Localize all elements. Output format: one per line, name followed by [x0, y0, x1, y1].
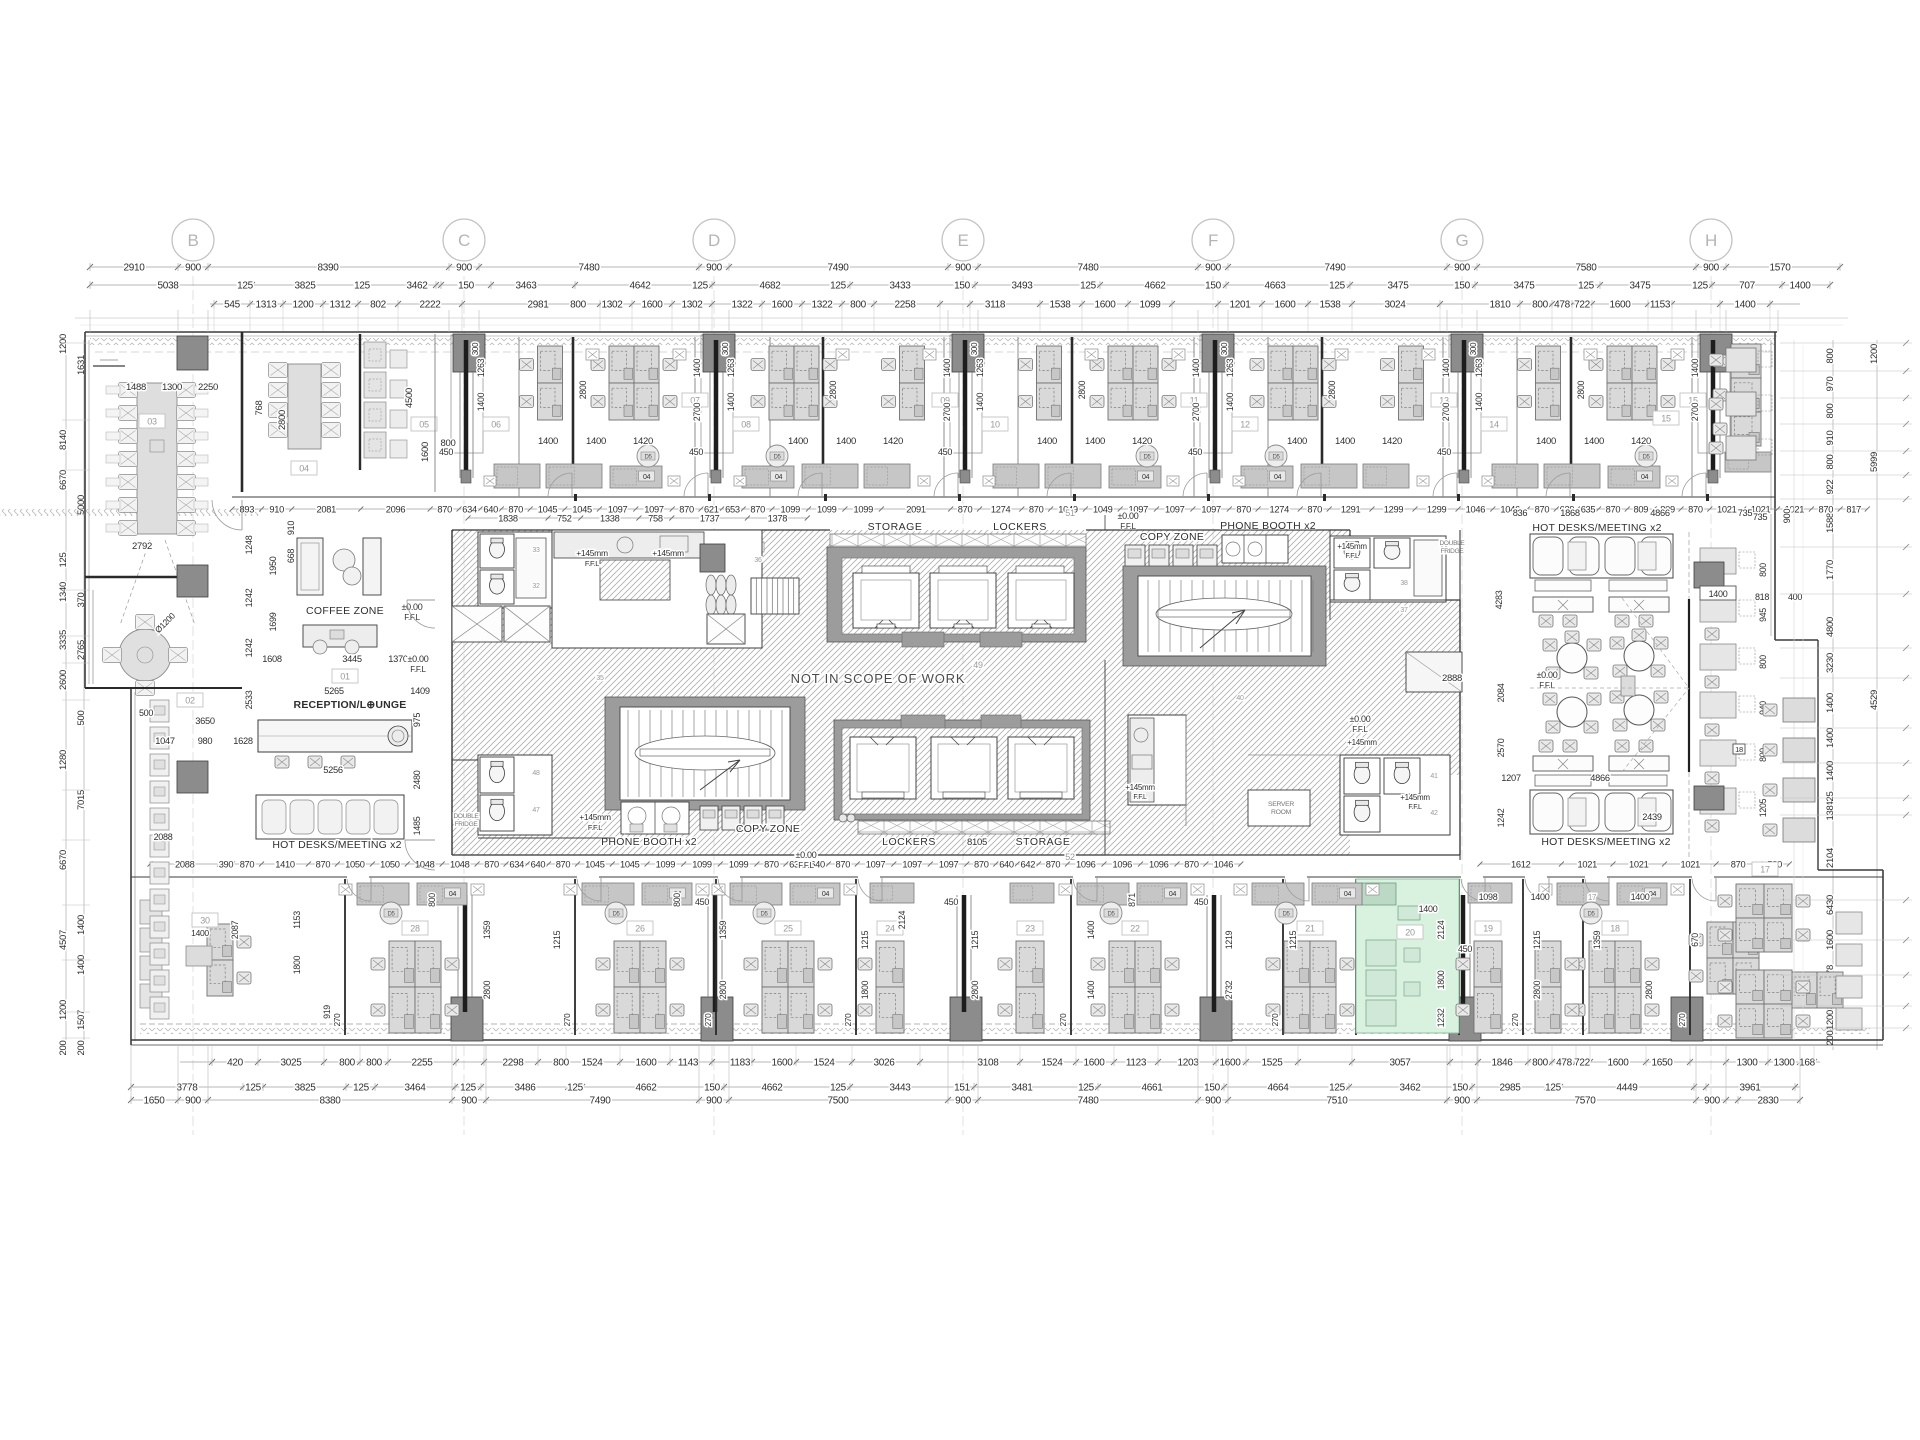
svg-text:4662: 4662 [1144, 281, 1166, 292]
svg-text:640: 640 [531, 860, 546, 870]
svg-text:425: 425 [1825, 792, 1836, 807]
svg-text:3057: 3057 [1389, 1058, 1411, 1069]
svg-text:2088: 2088 [154, 832, 173, 842]
svg-text:DOUBLE: DOUBLE [1440, 540, 1466, 547]
svg-text:D5: D5 [644, 455, 652, 461]
svg-text:±0.00: ±0.00 [402, 602, 423, 612]
svg-text:3335: 3335 [58, 630, 69, 650]
svg-text:2732: 2732 [1224, 980, 1234, 999]
svg-text:150: 150 [704, 1083, 721, 1094]
svg-text:270: 270 [1059, 1013, 1068, 1027]
svg-text:2091: 2091 [906, 505, 926, 515]
svg-text:1097: 1097 [866, 860, 886, 870]
svg-text:1600: 1600 [641, 300, 663, 311]
svg-text:1300: 1300 [1773, 1058, 1795, 1069]
svg-text:3475: 3475 [1513, 281, 1535, 292]
svg-text:2124: 2124 [897, 910, 907, 929]
svg-text:150: 150 [458, 281, 475, 292]
svg-text:1370: 1370 [388, 654, 408, 664]
svg-text:6430: 6430 [1825, 895, 1836, 915]
svg-text:1021: 1021 [1629, 860, 1649, 870]
svg-text:900: 900 [461, 1096, 478, 1107]
svg-text:D5: D5 [760, 912, 768, 918]
svg-text:450: 450 [1437, 447, 1451, 457]
svg-text:4664: 4664 [1267, 1083, 1289, 1094]
svg-text:D5: D5 [1282, 912, 1290, 918]
svg-text:3118: 3118 [985, 300, 1006, 311]
svg-text:2981: 2981 [527, 300, 549, 311]
svg-text:+145mm: +145mm [1400, 793, 1430, 802]
svg-text:945: 945 [1758, 608, 1768, 622]
svg-text:7480: 7480 [1077, 263, 1099, 274]
svg-text:1400: 1400 [76, 915, 87, 935]
svg-text:150: 150 [1452, 1083, 1469, 1094]
svg-text:1274: 1274 [991, 505, 1011, 515]
svg-text:800: 800 [1758, 655, 1768, 669]
svg-text:30: 30 [200, 916, 210, 926]
svg-text:D5: D5 [387, 912, 395, 918]
svg-text:800: 800 [366, 1058, 383, 1069]
svg-text:1359: 1359 [1592, 930, 1602, 949]
svg-text:870: 870 [1029, 505, 1044, 515]
svg-text:4800: 4800 [1825, 617, 1836, 637]
svg-text:3026: 3026 [873, 1058, 895, 1069]
svg-text:1200: 1200 [292, 300, 314, 311]
svg-text:1021: 1021 [1577, 860, 1597, 870]
svg-text:20: 20 [1405, 928, 1415, 938]
svg-text:06: 06 [491, 420, 501, 430]
svg-text:1302: 1302 [681, 300, 703, 311]
svg-text:1215: 1215 [552, 930, 562, 949]
svg-text:7570: 7570 [1574, 1096, 1596, 1107]
svg-text:138: 138 [1825, 806, 1836, 821]
svg-text:635: 635 [1581, 505, 1596, 515]
svg-text:900: 900 [706, 263, 723, 274]
svg-text:2800: 2800 [482, 980, 492, 999]
svg-text:FRIDGE: FRIDGE [455, 821, 479, 828]
svg-text:450: 450 [1188, 447, 1202, 457]
svg-text:HOT DESKS/MEETING x2: HOT DESKS/MEETING x2 [272, 839, 401, 851]
svg-text:200: 200 [58, 1041, 69, 1056]
svg-text:1096: 1096 [1076, 860, 1096, 870]
svg-text:1420: 1420 [1631, 436, 1651, 447]
svg-text:24: 24 [885, 924, 895, 934]
svg-text:03: 03 [147, 417, 157, 427]
svg-text:919: 919 [322, 1005, 332, 1019]
svg-text:1400: 1400 [76, 955, 87, 975]
svg-text:800: 800 [1825, 404, 1836, 419]
svg-text:642: 642 [1020, 860, 1035, 870]
svg-text:125: 125 [1329, 281, 1346, 292]
svg-text:2888: 2888 [1442, 673, 1462, 684]
svg-text:D: D [708, 231, 720, 250]
svg-text:975: 975 [412, 713, 422, 727]
svg-text:1048: 1048 [450, 860, 470, 870]
svg-text:1248: 1248 [244, 535, 254, 554]
svg-text:870: 870 [1184, 860, 1199, 870]
svg-text:1046: 1046 [1214, 860, 1234, 870]
svg-text:D5: D5 [1143, 455, 1151, 461]
svg-text:125: 125 [1078, 1083, 1095, 1094]
svg-text:150: 150 [1454, 281, 1471, 292]
svg-text:270: 270 [844, 1013, 853, 1027]
svg-text:270: 270 [1511, 1013, 1520, 1027]
svg-text:1868: 1868 [1560, 508, 1580, 518]
svg-text:22: 22 [1130, 924, 1140, 934]
svg-text:1600: 1600 [1607, 1058, 1629, 1069]
svg-text:1600: 1600 [635, 1058, 657, 1069]
svg-text:1143: 1143 [678, 1058, 699, 1069]
svg-text:870: 870 [240, 860, 255, 870]
svg-text:125: 125 [1578, 281, 1595, 292]
svg-text:1538: 1538 [1319, 300, 1341, 311]
svg-text:150: 150 [1204, 1083, 1221, 1094]
svg-text:125: 125 [237, 281, 254, 292]
svg-text:08: 08 [741, 420, 751, 430]
svg-text:1203: 1203 [1177, 1058, 1199, 1069]
svg-text:870: 870 [1236, 505, 1251, 515]
svg-text:900: 900 [1782, 509, 1792, 524]
svg-text:400: 400 [1788, 592, 1802, 602]
svg-text:48: 48 [532, 770, 540, 777]
svg-text:3475: 3475 [1387, 281, 1409, 292]
svg-text:1232: 1232 [1436, 1008, 1446, 1027]
svg-text:3481: 3481 [1011, 1083, 1033, 1094]
svg-text:150: 150 [1205, 281, 1222, 292]
svg-text:1400: 1400 [1474, 392, 1484, 411]
svg-text:1400: 1400 [1335, 436, 1355, 447]
svg-text:1200: 1200 [1825, 1010, 1836, 1030]
svg-text:125: 125 [460, 1083, 477, 1094]
svg-text:1299: 1299 [1384, 505, 1404, 515]
svg-text:1400: 1400 [1531, 892, 1550, 902]
svg-text:19: 19 [1483, 924, 1493, 934]
svg-text:G: G [1456, 231, 1469, 250]
svg-text:1950: 1950 [268, 556, 278, 575]
svg-text:1322: 1322 [731, 300, 753, 311]
svg-text:8390: 8390 [317, 263, 339, 274]
svg-text:33: 33 [532, 547, 540, 554]
svg-text:D5: D5 [1107, 912, 1115, 918]
svg-text:125: 125 [1545, 1083, 1562, 1094]
svg-text:300: 300 [1220, 342, 1229, 355]
svg-text:1338: 1338 [600, 514, 620, 524]
svg-text:1215: 1215 [1288, 930, 1298, 949]
svg-text:3443: 3443 [889, 1083, 911, 1094]
svg-text:RECEPTION/L⊕UNGE: RECEPTION/L⊕UNGE [294, 699, 407, 711]
svg-text:02: 02 [185, 696, 195, 706]
svg-text:1400: 1400 [1709, 589, 1728, 599]
svg-text:300: 300 [721, 342, 730, 355]
svg-text:LOCKERS: LOCKERS [882, 836, 936, 848]
svg-text:+145mm: +145mm [1347, 738, 1377, 747]
svg-text:870: 870 [764, 860, 779, 870]
svg-text:1153: 1153 [292, 911, 302, 929]
svg-text:1507: 1507 [76, 1010, 87, 1030]
svg-text:17: 17 [1760, 865, 1770, 875]
svg-text:2800: 2800 [1327, 380, 1337, 399]
svg-text:1200: 1200 [1869, 344, 1880, 364]
svg-text:980: 980 [198, 736, 213, 746]
svg-text:04: 04 [449, 891, 457, 898]
svg-text:722: 722 [1574, 300, 1591, 311]
svg-text:1400: 1400 [692, 358, 702, 377]
svg-text:2439: 2439 [1642, 812, 1662, 822]
svg-text:1300: 1300 [1736, 1058, 1758, 1069]
svg-text:1263: 1263 [1225, 358, 1235, 377]
svg-text:500: 500 [139, 708, 153, 718]
svg-text:F: F [1208, 231, 1218, 250]
svg-text:125: 125 [353, 1083, 370, 1094]
svg-text:1400: 1400 [1789, 281, 1811, 292]
svg-text:2800: 2800 [1644, 980, 1654, 999]
svg-text:F.F.L: F.F.L [404, 613, 420, 622]
svg-text:910: 910 [1825, 431, 1836, 446]
svg-text:5265: 5265 [324, 686, 344, 696]
svg-text:2533: 2533 [244, 690, 254, 709]
svg-text:F.F.L: F.F.L [588, 823, 602, 832]
svg-text:D5: D5 [1642, 455, 1650, 461]
svg-text:1485: 1485 [412, 816, 422, 835]
svg-text:1201: 1201 [1229, 300, 1251, 311]
svg-text:1488: 1488 [126, 382, 146, 393]
svg-text:1838: 1838 [498, 514, 518, 524]
svg-text:2570: 2570 [1496, 738, 1506, 757]
svg-text:FRIDGE: FRIDGE [1441, 548, 1465, 555]
svg-text:1650: 1650 [143, 1096, 165, 1107]
svg-text:2800: 2800 [277, 410, 288, 430]
svg-text:23: 23 [1025, 924, 1035, 934]
svg-text:04: 04 [1169, 891, 1177, 898]
svg-text:4500: 4500 [404, 388, 415, 408]
svg-text:900: 900 [955, 263, 972, 274]
svg-text:38: 38 [1400, 580, 1408, 587]
svg-text:H: H [1705, 231, 1717, 250]
svg-text:1263: 1263 [726, 358, 736, 377]
svg-text:910: 910 [269, 505, 284, 515]
svg-text:1291: 1291 [1341, 505, 1361, 515]
svg-text:870: 870 [679, 505, 694, 515]
svg-text:1098: 1098 [1479, 892, 1498, 902]
svg-text:1400: 1400 [586, 436, 606, 447]
svg-text:1215: 1215 [970, 930, 980, 949]
svg-text:1600: 1600 [1219, 1058, 1241, 1069]
svg-text:640: 640 [999, 860, 1014, 870]
svg-text:802: 802 [370, 300, 387, 311]
svg-text:870: 870 [1307, 505, 1322, 515]
svg-text:±0.00: ±0.00 [796, 850, 817, 860]
svg-text:1410: 1410 [275, 860, 295, 870]
svg-text:F.F.L: F.F.L [410, 665, 426, 674]
svg-text:STORAGE: STORAGE [868, 521, 923, 533]
svg-text:37: 37 [1400, 607, 1408, 614]
svg-text:1046: 1046 [1466, 505, 1486, 515]
svg-text:125: 125 [1329, 1083, 1346, 1094]
svg-text:+145mm: +145mm [652, 548, 684, 558]
svg-text:270: 270 [563, 1013, 572, 1027]
svg-text:1021: 1021 [1717, 505, 1737, 515]
svg-text:4663: 4663 [1264, 281, 1286, 292]
svg-text:1400: 1400 [788, 436, 808, 447]
svg-text:25: 25 [783, 924, 793, 934]
svg-text:7490: 7490 [589, 1096, 611, 1107]
svg-text:1810: 1810 [1489, 300, 1511, 311]
svg-text:04: 04 [1344, 891, 1352, 898]
svg-text:+145mm: +145mm [579, 812, 611, 822]
svg-text:04: 04 [1641, 474, 1649, 481]
svg-text:D5: D5 [612, 912, 620, 918]
svg-text:3433: 3433 [889, 281, 911, 292]
svg-text:1600: 1600 [420, 442, 431, 462]
svg-text:3475: 3475 [1629, 281, 1651, 292]
svg-text:1097: 1097 [1165, 505, 1185, 515]
svg-text:800: 800 [441, 438, 456, 449]
svg-text:7480: 7480 [1077, 1096, 1099, 1107]
svg-text:2700: 2700 [1690, 402, 1700, 421]
svg-text:300: 300 [970, 342, 979, 355]
svg-text:1600: 1600 [771, 1058, 793, 1069]
svg-text:1378: 1378 [768, 514, 788, 524]
svg-text:E: E [957, 231, 968, 250]
svg-text:4866: 4866 [1650, 508, 1670, 518]
svg-text:870: 870 [556, 860, 571, 870]
svg-text:1420: 1420 [1382, 436, 1402, 447]
svg-text:04: 04 [1274, 474, 1282, 481]
svg-text:5999: 5999 [1869, 452, 1880, 472]
svg-text:2088: 2088 [175, 860, 195, 870]
svg-text:768: 768 [254, 401, 265, 416]
svg-text:2800: 2800 [578, 380, 588, 399]
svg-text:14: 14 [1489, 420, 1499, 430]
svg-text:±0.00: ±0.00 [1118, 511, 1139, 521]
svg-text:18: 18 [1735, 745, 1743, 754]
svg-text:F.F.L: F.F.L [585, 559, 599, 568]
svg-text:18: 18 [1610, 924, 1620, 934]
svg-text:125: 125 [692, 281, 709, 292]
svg-text:47: 47 [532, 807, 540, 814]
svg-text:04: 04 [822, 891, 830, 898]
svg-text:900: 900 [456, 263, 473, 274]
svg-text:F.F.L: F.F.L [1133, 794, 1147, 801]
svg-text:900: 900 [706, 1096, 723, 1107]
svg-text:1322: 1322 [811, 300, 833, 311]
svg-text:870: 870 [1606, 505, 1621, 515]
svg-text:200: 200 [76, 1041, 87, 1056]
svg-text:1340: 1340 [58, 582, 69, 602]
svg-text:3961: 3961 [1739, 1083, 1761, 1094]
svg-text:D5: D5 [773, 455, 781, 461]
svg-text:800: 800 [339, 1058, 356, 1069]
svg-text:970: 970 [1825, 377, 1836, 392]
svg-text:1263: 1263 [476, 358, 486, 377]
svg-text:1263: 1263 [1474, 358, 1484, 377]
svg-text:1047: 1047 [155, 736, 175, 746]
svg-text:1800: 1800 [292, 955, 302, 974]
svg-text:125: 125 [1080, 281, 1097, 292]
svg-text:8105: 8105 [967, 837, 987, 848]
svg-text:1359: 1359 [718, 920, 728, 939]
svg-text:800: 800 [1758, 563, 1768, 577]
svg-text:735: 735 [1753, 512, 1768, 522]
svg-text:125: 125 [1692, 281, 1709, 292]
svg-text:125: 125 [830, 1083, 847, 1094]
svg-text:3025: 3025 [280, 1058, 302, 1069]
svg-text:1099: 1099 [729, 860, 749, 870]
svg-text:1538: 1538 [1049, 300, 1071, 311]
svg-text:STORAGE: STORAGE [1016, 836, 1071, 848]
svg-text:1420: 1420 [883, 436, 903, 447]
svg-text:2800: 2800 [1077, 380, 1087, 399]
svg-text:1049: 1049 [1093, 505, 1113, 515]
svg-text:1215: 1215 [1532, 930, 1542, 949]
svg-text:270: 270 [704, 1013, 713, 1027]
svg-text:2800: 2800 [1532, 980, 1542, 999]
svg-text:1400: 1400 [1584, 436, 1604, 447]
svg-text:3445: 3445 [342, 654, 362, 664]
svg-text:±0.00: ±0.00 [1350, 714, 1371, 724]
svg-text:1600: 1600 [1094, 300, 1116, 311]
svg-text:634: 634 [509, 860, 524, 870]
svg-text:7015: 7015 [76, 790, 87, 810]
svg-text:2800: 2800 [828, 380, 838, 399]
svg-text:270: 270 [1678, 1013, 1687, 1027]
svg-text:2087: 2087 [230, 920, 240, 939]
svg-text:3825: 3825 [294, 1083, 316, 1094]
svg-text:7500: 7500 [827, 1096, 849, 1107]
svg-text:3462: 3462 [1399, 1083, 1421, 1094]
svg-text:1608: 1608 [262, 654, 282, 664]
svg-text:04: 04 [1142, 474, 1150, 481]
svg-text:2480: 2480 [412, 770, 422, 789]
svg-text:2081: 2081 [317, 505, 337, 515]
svg-text:800: 800 [672, 893, 682, 907]
svg-text:1215: 1215 [860, 930, 870, 949]
svg-text:+145mm: +145mm [1125, 783, 1155, 792]
svg-text:870: 870 [750, 505, 765, 515]
svg-text:12: 12 [1240, 420, 1250, 430]
svg-text:3650: 3650 [195, 716, 215, 726]
svg-text:5256: 5256 [323, 765, 343, 775]
svg-text:1219: 1219 [1224, 930, 1234, 949]
svg-text:1313: 1313 [255, 300, 277, 311]
svg-text:800: 800 [553, 1058, 570, 1069]
svg-text:1400: 1400 [476, 392, 486, 411]
svg-text:F.F.L: F.F.L [798, 861, 814, 870]
svg-text:1400: 1400 [1037, 436, 1057, 447]
svg-text:1400: 1400 [836, 436, 856, 447]
svg-text:1359: 1359 [482, 920, 492, 939]
svg-text:1099: 1099 [1139, 300, 1161, 311]
svg-text:900: 900 [185, 1096, 202, 1107]
svg-text:SERVER: SERVER [1268, 801, 1294, 808]
svg-text:125: 125 [354, 281, 371, 292]
svg-text:500: 500 [76, 711, 87, 726]
svg-text:1400: 1400 [1734, 300, 1756, 311]
svg-text:634: 634 [462, 505, 477, 515]
svg-text:4866: 4866 [1590, 773, 1610, 783]
svg-text:800: 800 [1825, 349, 1836, 364]
svg-text:1400: 1400 [726, 392, 736, 411]
svg-text:51: 51 [1065, 508, 1075, 518]
svg-text:420: 420 [227, 1058, 244, 1069]
svg-text:05: 05 [419, 420, 429, 430]
svg-text:1050: 1050 [380, 860, 400, 870]
svg-text:478: 478 [1556, 1058, 1573, 1069]
svg-text:42: 42 [1430, 810, 1438, 817]
svg-text:1409: 1409 [410, 686, 430, 696]
svg-text:870: 870 [974, 860, 989, 870]
svg-text:7490: 7490 [1324, 263, 1346, 274]
